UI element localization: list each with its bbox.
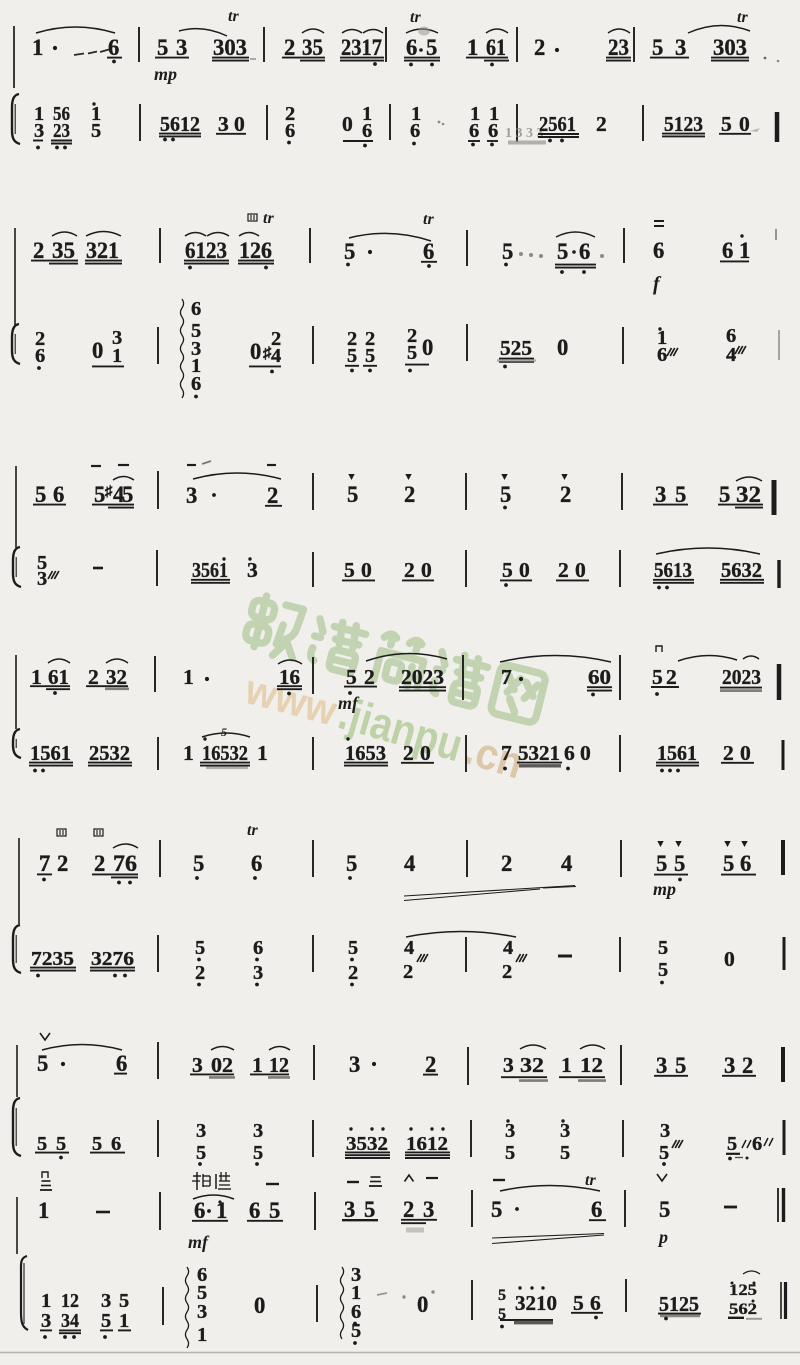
svg-text:12: 12 [269,1053,289,1077]
svg-text:6: 6 [752,1133,762,1155]
svg-text:5: 5 [94,482,105,507]
svg-text:6: 6 [362,120,372,142]
svg-text:126: 126 [239,238,272,263]
svg-text:2: 2 [666,665,677,689]
svg-text:2: 2 [57,851,68,876]
svg-text:5: 5 [557,239,568,264]
svg-text:1: 1 [197,1324,207,1346]
svg-text:35: 35 [302,35,323,60]
svg-text:2: 2 [195,962,205,984]
svg-text:mp: mp [154,64,177,84]
svg-text:5: 5 [193,851,204,876]
svg-text:6123: 6123 [185,238,227,263]
svg-text:6: 6 [410,120,420,142]
svg-text:303: 303 [213,35,247,60]
svg-text:0: 0 [575,558,586,582]
svg-text:5: 5 [351,1320,361,1342]
svg-text:6: 6 [108,35,119,60]
svg-text:32: 32 [736,482,761,507]
svg-text:61: 61 [486,35,506,60]
svg-text:6: 6 [488,120,498,142]
svg-text:3: 3 [197,1301,207,1323]
svg-text:5: 5 [347,482,358,507]
svg-text:02: 02 [211,1053,233,1077]
svg-text:5: 5 [37,1051,48,1076]
svg-text:4: 4 [404,937,414,959]
svg-text:0: 0 [361,558,372,582]
svg-text:0: 0 [234,112,245,136]
svg-text:5: 5 [346,665,357,689]
svg-text:0: 0 [422,335,433,360]
svg-text:2: 2 [558,558,569,582]
svg-text:5: 5 [505,1142,515,1164]
svg-text:23: 23 [53,120,70,142]
svg-text:5321: 5321 [518,741,560,765]
svg-text:2: 2 [534,35,545,60]
svg-text:6: 6 [590,1291,601,1315]
svg-text:6: 6 [423,239,434,264]
svg-text:3: 3 [186,483,197,508]
svg-text:6: 6 [406,35,417,60]
svg-text:3: 3 [675,35,686,60]
svg-text:6: 6 [116,1051,127,1076]
svg-text:3: 3 [253,962,263,984]
svg-text:5125: 5125 [659,1292,699,1316]
svg-text:tr: tr [263,210,274,227]
svg-text:7: 7 [39,851,50,876]
svg-text:1: 1 [257,741,268,765]
svg-text:5613: 5613 [654,558,692,582]
svg-text:0: 0 [417,1292,428,1317]
svg-text:321: 321 [86,238,119,263]
svg-text:5: 5 [491,1197,502,1222]
svg-text:3: 3 [247,558,258,582]
svg-text:6: 6 [35,345,45,367]
svg-text:tr: tr [737,9,748,26]
svg-text:5: 5 [122,482,133,507]
svg-text:1: 1 [41,1290,51,1312]
svg-text:5: 5 [196,1142,206,1164]
svg-text:tr: tr [410,9,421,26]
svg-text:4: 4 [503,937,513,959]
svg-text:5: 5 [502,558,513,582]
svg-text:6: 6 [253,937,263,959]
svg-text:3: 3 [505,1120,515,1142]
svg-text:0: 0 [420,741,431,765]
svg-text:3: 3 [656,1053,667,1078]
svg-text:4: 4 [271,345,281,367]
svg-text:3561: 3561 [192,558,228,582]
svg-text:6: 6 [722,238,733,263]
svg-text:6: 6 [591,1197,602,1222]
svg-text:2317: 2317 [341,35,382,60]
svg-text:3: 3 [192,1053,203,1077]
svg-text:3: 3 [560,1120,570,1142]
svg-text:5: 5 [407,342,417,364]
svg-text:5: 5 [656,851,667,876]
svg-text:2: 2 [267,483,278,508]
svg-text:5: 5 [35,482,46,507]
svg-text:2: 2 [364,665,375,689]
svg-text:2: 2 [33,238,44,263]
svg-text:5: 5 [675,1053,686,1078]
svg-text:tr: tr [247,822,258,839]
svg-text:2023: 2023 [401,665,444,689]
svg-text:5612: 5612 [160,112,200,136]
svg-text:6: 6 [564,741,575,765]
svg-text:5632: 5632 [721,558,762,582]
svg-text:5: 5 [119,1290,129,1312]
svg-text:12: 12 [61,1290,79,1312]
svg-text:3: 3 [37,568,47,590]
svg-text:0: 0 [342,112,353,136]
svg-text:2: 2 [403,1197,414,1222]
svg-text:5: 5 [344,239,355,264]
svg-text:6: 6 [469,120,479,142]
svg-text:5: 5 [221,725,227,739]
svg-text:1: 1 [467,35,478,60]
svg-text:mf: mf [188,1232,210,1252]
svg-text:6: 6 [194,1198,205,1223]
svg-text:mp: mp [653,879,676,899]
svg-text:5: 5 [500,482,511,507]
svg-text:6: 6 [285,120,295,142]
svg-text:mf: mf [338,693,360,713]
svg-text:♯: ♯ [263,344,271,362]
svg-text:303: 303 [713,35,747,60]
svg-text:5: 5 [727,1133,737,1155]
svg-text:34: 34 [61,1310,79,1332]
svg-text:0: 0 [580,741,591,765]
svg-text:4: 4 [561,851,572,876]
svg-text:5: 5 [269,1198,280,1223]
svg-text:12: 12 [580,1053,603,1077]
svg-text:525: 525 [500,336,532,360]
svg-text:23: 23 [608,35,629,60]
svg-text:6: 6 [191,298,201,320]
svg-text:5: 5 [157,35,168,60]
svg-text:3: 3 [349,1052,360,1077]
svg-text:0: 0 [724,947,735,971]
svg-text:1: 1 [739,238,750,263]
svg-text:3: 3 [655,482,666,507]
svg-text:2: 2 [560,482,571,507]
svg-text:1561: 1561 [657,741,697,765]
svg-text:5123: 5123 [664,112,703,136]
svg-text:3: 3 [196,1120,206,1142]
svg-text:562: 562 [729,1300,757,1318]
svg-text:5: 5 [101,1310,111,1332]
svg-text:2: 2 [742,1053,753,1078]
svg-text:3: 3 [660,1120,670,1142]
svg-text:5: 5 [674,851,685,876]
svg-text:5: 5 [498,1286,506,1304]
svg-text:3: 3 [218,112,229,136]
svg-text:6: 6 [740,851,751,876]
svg-text:2: 2 [404,482,415,507]
svg-text:5: 5 [652,665,663,689]
svg-text:tr: tr [228,8,239,25]
svg-text:1: 1 [561,1053,572,1077]
svg-text:5: 5 [344,558,355,582]
svg-text:1: 1 [216,1198,227,1223]
svg-text:6: 6 [657,344,667,366]
svg-text:5: 5 [675,482,686,507]
svg-text:32: 32 [520,1053,544,1077]
svg-text:3: 3 [176,35,187,60]
svg-text:2: 2 [723,741,734,765]
svg-text:6: 6 [249,1198,260,1223]
svg-text:1: 1 [252,1053,263,1077]
svg-text:5: 5 [365,345,375,367]
svg-text:4: 4 [404,851,415,876]
svg-text:5: 5 [719,482,730,507]
svg-text:5: 5 [195,937,205,959]
svg-text:0: 0 [92,338,103,363]
svg-text:2532: 2532 [89,741,130,765]
svg-text:1 3 3 3: 1 3 3 3 [505,126,544,141]
svg-text:♯: ♯ [105,484,113,500]
svg-text:1653: 1653 [345,741,386,765]
svg-text:0: 0 [519,558,530,582]
svg-text:5: 5 [573,1291,584,1315]
svg-text:0: 0 [254,1293,265,1318]
svg-text:5: 5 [426,35,437,60]
svg-text:3210: 3210 [515,1291,557,1315]
svg-text:0: 0 [557,335,568,360]
svg-text:1: 1 [183,741,194,765]
svg-text:1: 1 [119,1310,129,1332]
svg-text:2: 2 [94,851,105,876]
svg-text:1: 1 [112,345,122,367]
svg-text:tr: tr [423,211,434,228]
svg-text:2: 2 [404,558,415,582]
svg-text:4: 4 [726,344,736,366]
svg-text:3: 3 [724,1053,735,1078]
svg-text:3: 3 [503,1053,514,1077]
svg-text:p: p [657,1227,668,1247]
svg-text:6: 6 [191,373,201,395]
svg-text:5: 5 [347,345,357,367]
svg-text:3: 3 [101,1290,111,1312]
svg-text:60: 60 [588,665,611,689]
svg-text:5: 5 [659,1142,669,1164]
svg-text:5: 5 [364,1197,375,1222]
svg-text:0: 0 [740,741,751,765]
svg-text:6: 6 [579,239,590,264]
svg-text:5: 5 [721,112,732,136]
svg-text:5: 5 [502,239,513,264]
svg-text:5: 5 [348,937,358,959]
svg-text:3: 3 [423,1197,434,1222]
svg-text:1: 1 [38,1198,49,1223]
svg-text:5: 5 [658,959,668,981]
svg-text:5: 5 [658,937,668,959]
svg-text:35: 35 [52,238,75,263]
svg-text:2: 2 [596,112,607,136]
svg-text:1: 1 [32,35,43,60]
svg-text:6: 6 [251,851,262,876]
svg-text:6: 6 [53,482,64,507]
svg-text:0: 0 [250,339,261,364]
svg-text:5: 5 [659,1197,670,1222]
svg-text:2: 2 [501,851,512,876]
svg-text:0: 0 [739,112,750,136]
svg-text:5: 5 [346,851,357,876]
svg-text:3: 3 [41,1310,51,1332]
svg-text:2: 2 [403,961,413,983]
svg-text:16532: 16532 [202,741,248,765]
svg-text:1: 1 [183,665,194,689]
svg-text:5: 5 [723,851,734,876]
svg-text:3: 3 [253,1120,263,1142]
svg-text:76: 76 [113,851,137,876]
svg-text:5: 5 [560,1142,570,1164]
svg-text:2: 2 [284,35,295,60]
svg-text:3: 3 [34,120,44,142]
svg-text:5: 5 [91,120,101,142]
svg-text:3: 3 [344,1197,355,1222]
svg-text:7: 7 [501,741,512,765]
svg-text:tr: tr [585,1172,596,1189]
svg-text:2: 2 [348,962,358,984]
svg-text:0: 0 [421,558,432,582]
svg-text:2: 2 [502,961,512,983]
svg-text:2: 2 [403,741,414,765]
svg-text:2561: 2561 [539,112,576,136]
svg-text:5: 5 [652,35,663,60]
svg-text:5: 5 [253,1142,263,1164]
svg-text:6: 6 [653,238,664,263]
svg-text:2: 2 [425,1052,436,1077]
svg-text:2023: 2023 [722,665,761,689]
svg-text:1561: 1561 [30,741,71,765]
svg-text:7: 7 [501,665,512,689]
